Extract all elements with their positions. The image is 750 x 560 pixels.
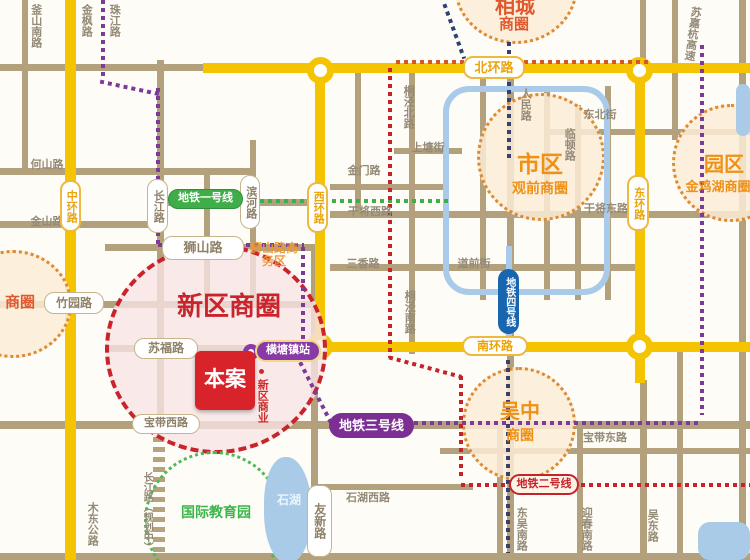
ganjiangxi-road-label: 干将西路 (344, 206, 396, 219)
metro2-mid-vertical (459, 376, 463, 478)
road-bottom (0, 553, 750, 560)
xinqu-shangye-label: 新区商业 (254, 374, 269, 428)
beihuan-road-pill: 北环路 (463, 56, 525, 79)
yingchunnan-road-label: 迎春南路 (578, 503, 593, 555)
yuanqu-title: 园区 (699, 153, 749, 177)
changjiang-road-pill: 长江路 (147, 179, 168, 233)
metro3-east-vertical (700, 45, 704, 415)
metro3-north (101, 0, 105, 78)
xinqu-title: 新区商圈 (172, 292, 286, 322)
junction-nw (307, 57, 334, 84)
hengtang-station-label: 横塘镇站 (255, 340, 321, 362)
road-v-355 (355, 64, 361, 218)
shangtang-street-label: 上塘街 (407, 142, 449, 155)
daoqian-street-label: 道前街 (452, 258, 496, 271)
map-canvas: 釜山南路金枫路珠江路何山路金山路木东公路桐泾北路上塘街人民路东北街临顿路金门路干… (0, 0, 750, 560)
road-nanhuan (315, 342, 750, 352)
education-park-label: 国际教育园 (176, 504, 256, 521)
zhonghuan-road-pill: 中环路 (60, 180, 81, 232)
baodaidong-road-label: 宝带东路 (579, 432, 631, 445)
shishan-cbd-label: 狮山路商务区 (250, 240, 298, 270)
guanqian-sub: 观前商圈 (492, 180, 588, 196)
donghuan-road-pill: 东环路 (627, 175, 649, 231)
zhujiang-road-label: 珠江路 (106, 1, 121, 39)
shiqu-title: 市区 (507, 150, 573, 178)
metro4-south-dots (506, 360, 510, 553)
wuzhong-title: 吴中 (494, 400, 546, 424)
dongwunan-road-label: 东吴南路 (513, 503, 528, 555)
metro-line2-label: 地铁二号线 (509, 474, 579, 495)
nanhuan-road-pill: 南环路 (462, 336, 528, 356)
sanxiang-road-label: 三香路 (342, 258, 384, 271)
renmin-road-label: 人民路 (517, 84, 532, 124)
metro2-bend (389, 356, 462, 379)
tongjingnan-road-label: 桐泾南路 (401, 286, 416, 338)
west-circle-label: 商圈 (0, 294, 40, 312)
wudong-road-label: 吴东路 (644, 504, 659, 546)
shihu-lake (264, 457, 312, 560)
baodaixi-road-pill: 宝带西路 (132, 414, 200, 434)
project-site-marker: 本案 (195, 351, 255, 410)
road-zhonghuan (65, 0, 76, 560)
metro2-south-horizontal (461, 483, 750, 487)
xihuan-road-pill: 西环路 (307, 182, 328, 233)
wuzhong-sub: 商圈 (502, 427, 538, 443)
jinfeng-road-label: 金枫路 (78, 1, 93, 39)
ganjiangdong-road-label: 干将东路 (580, 203, 632, 216)
road-shihuxi (318, 484, 473, 490)
shishan-road-pill: 狮山路 (162, 236, 244, 260)
metro3-bend1 (100, 80, 161, 97)
changjiang-planned-label: 长江路（规划中） (138, 466, 154, 558)
metro-line3-label: 地铁三号线 (329, 413, 414, 438)
shihuxi-road-label: 石湖西路 (341, 492, 395, 505)
tongjingbei-road-label: 桐泾北路 (400, 82, 415, 132)
water-bottom-right (698, 522, 750, 560)
youxin-road-pill: 友新路 (307, 485, 332, 557)
metro3-south-horizontal (414, 421, 698, 425)
fushannan-road-label: 釜山南路 (27, 1, 43, 51)
zhuyuan-road-pill: 竹园路 (44, 292, 104, 314)
metro-line1-label: 地铁一号线 (168, 189, 243, 209)
mudong-highway-label: 木东公路 (84, 497, 99, 551)
heshan-road-label: 何山路 (27, 159, 67, 172)
junction-se (626, 333, 653, 360)
xiangcheng-sub: 商圈 (495, 16, 533, 34)
jinjihu-sub: 金鸡湖商圈 (684, 179, 750, 194)
binhe-road-pill: 滨河路 (240, 175, 260, 229)
jinmen-road-label: 金门路 (342, 165, 386, 178)
shihu-lake-label: 石湖 (274, 493, 304, 507)
road-donghuan-north-tan (640, 0, 646, 60)
dongbei-street-label: 东北街 (579, 109, 621, 122)
metro-line4-label: 地铁四号线 (498, 269, 519, 334)
sufu-road-pill: 苏福路 (134, 338, 198, 359)
road-v-677 (677, 350, 683, 557)
water-top-right (736, 84, 750, 136)
